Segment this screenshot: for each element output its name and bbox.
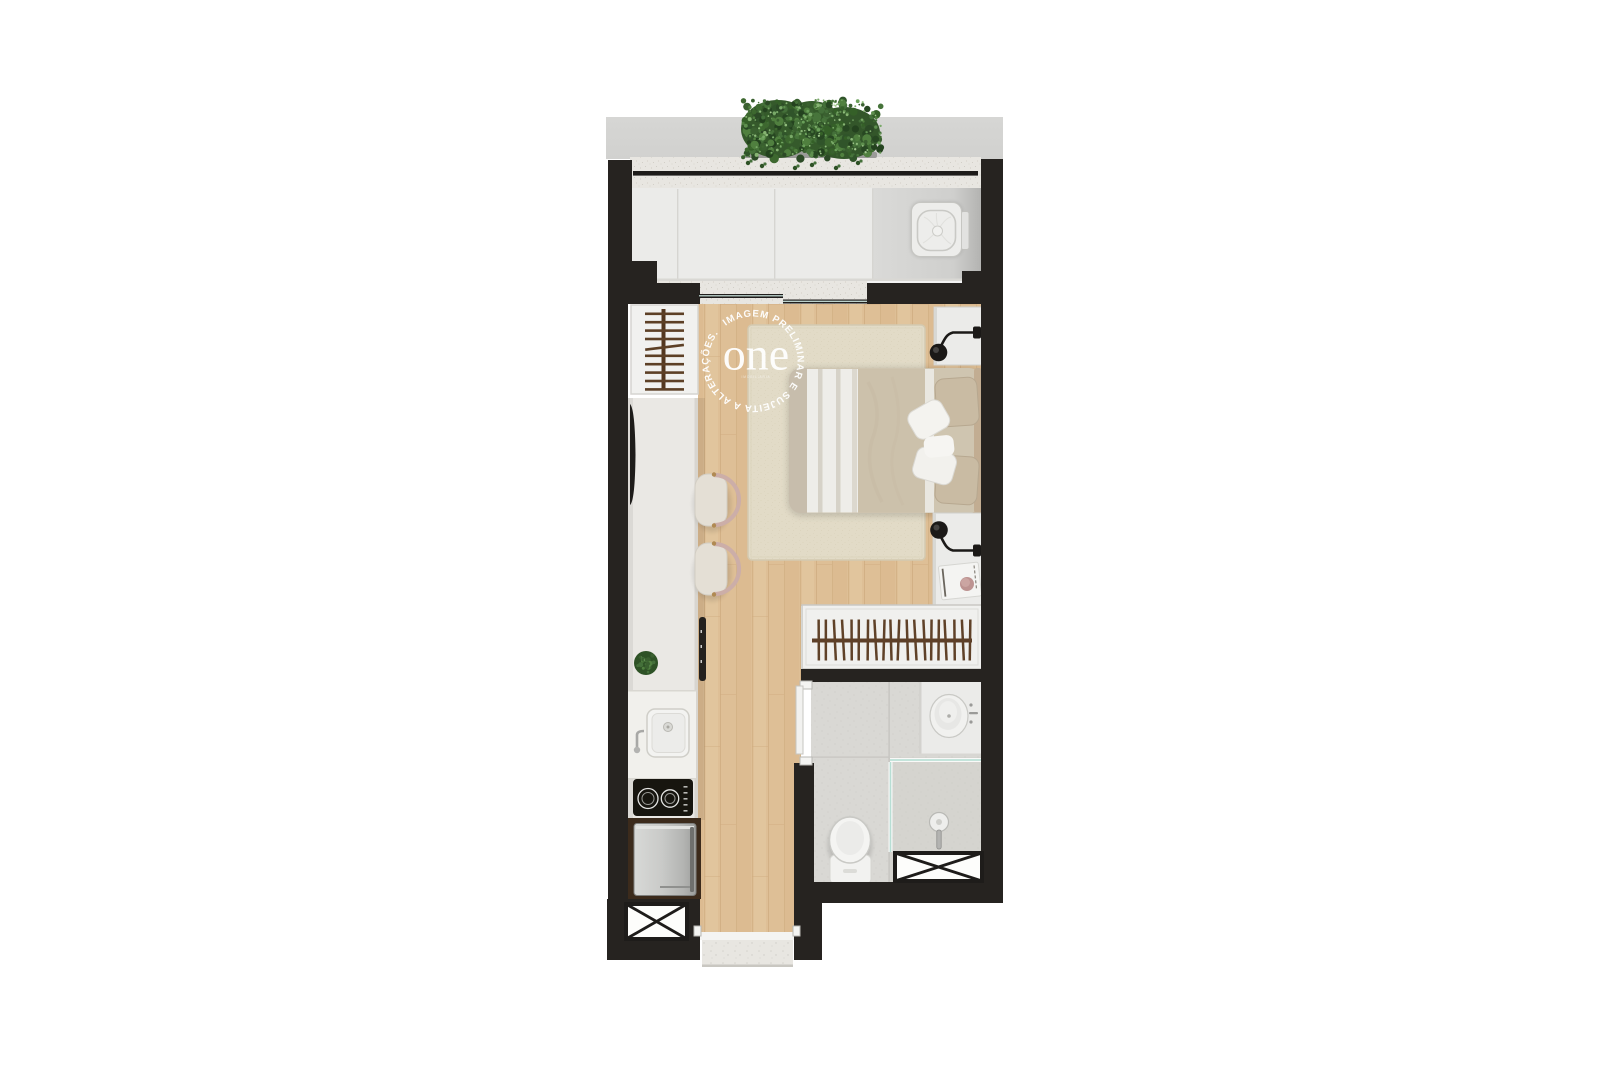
svg-text:one: one — [723, 329, 789, 380]
svg-text:IMOBILIÁRIA: IMOBILIÁRIA — [741, 375, 770, 379]
